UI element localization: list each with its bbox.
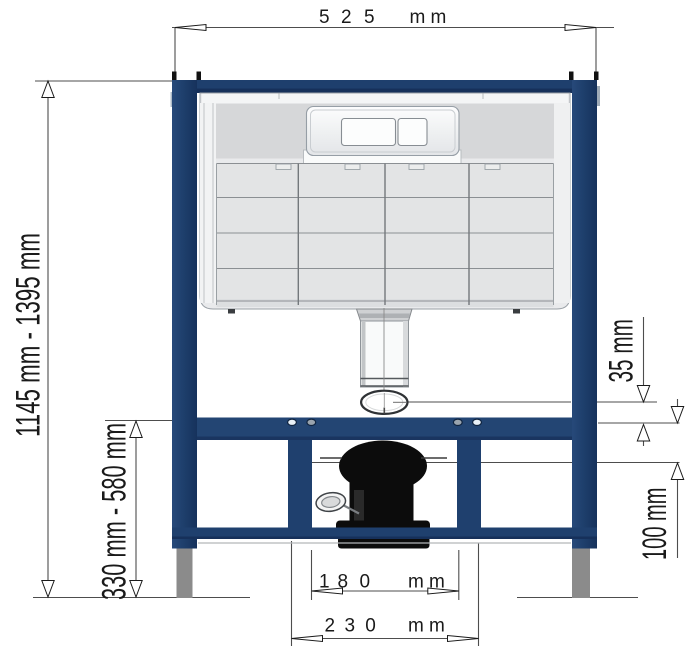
svg-text:1145 mm - 1395 mm: 1145 mm - 1395 mm	[10, 233, 48, 437]
svg-text:330 mm - 580 mm: 330 mm - 580 mm	[96, 423, 134, 600]
svg-text:100 mm: 100 mm	[636, 488, 674, 561]
svg-text:35 mm: 35 mm	[603, 319, 641, 383]
